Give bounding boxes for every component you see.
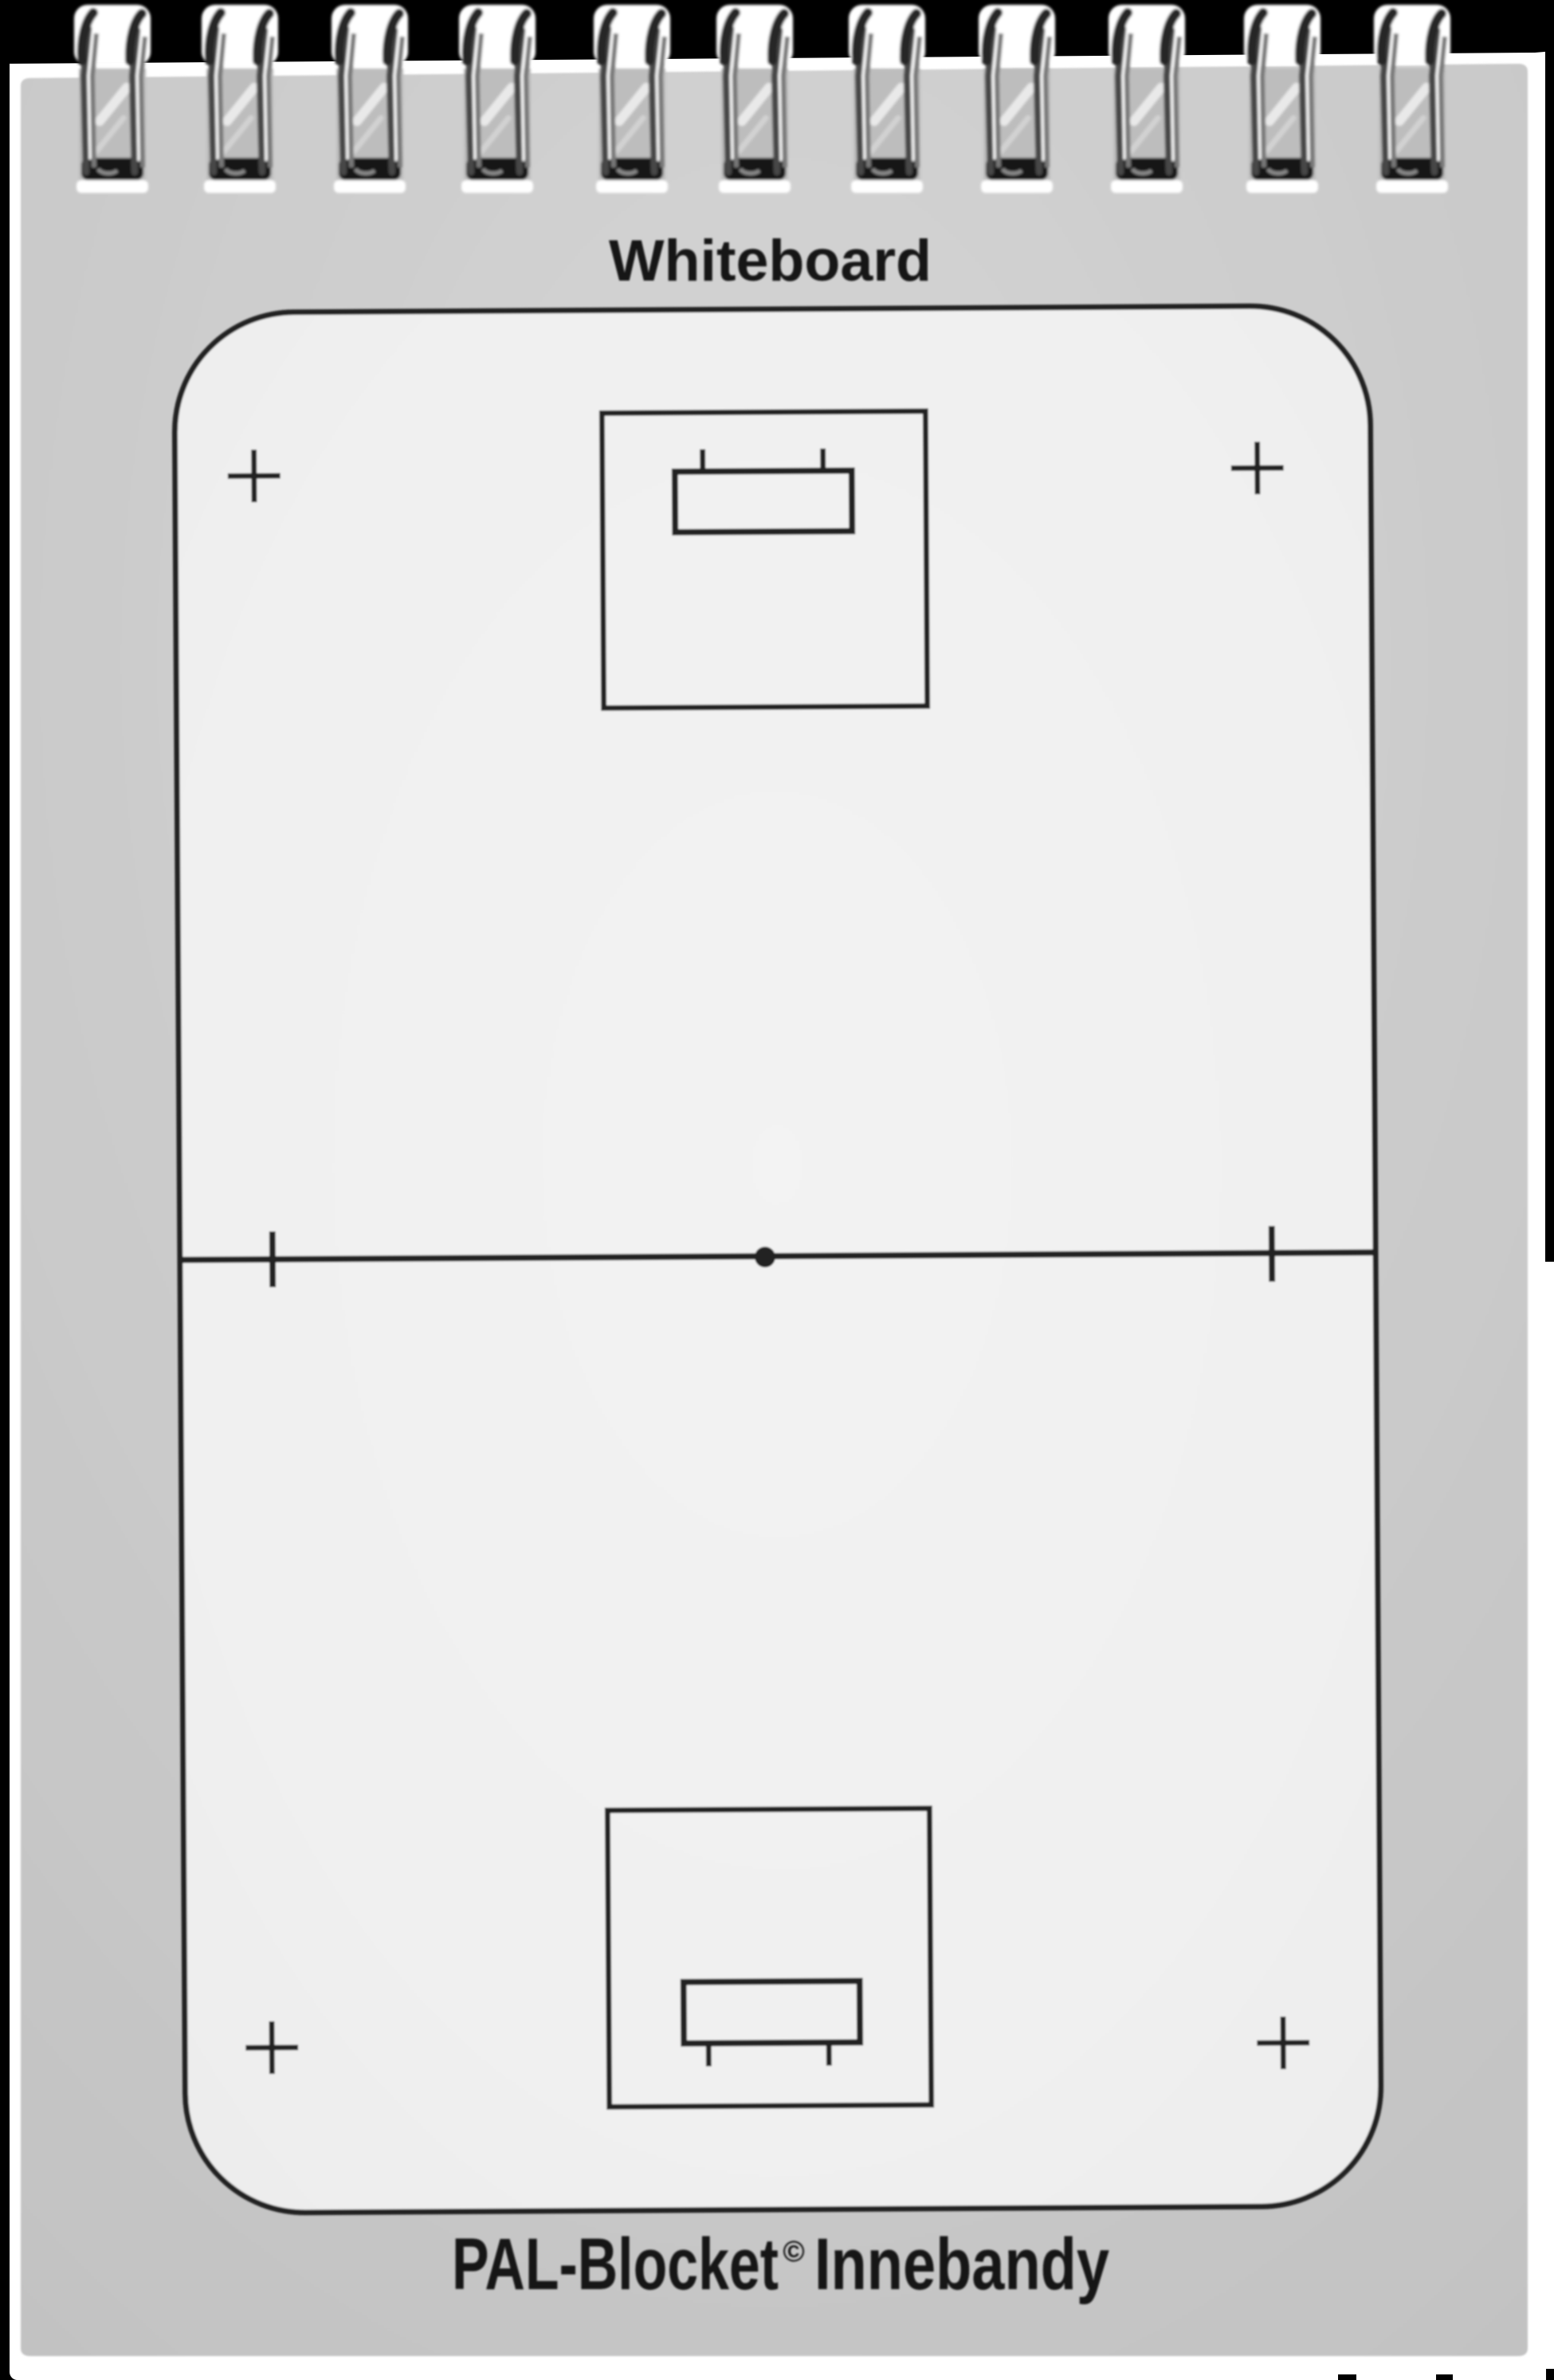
svg-text:PAL-Blocket: PAL-Blocket (452, 2224, 779, 2305)
svg-text:©: © (783, 2235, 804, 2268)
svg-text:Innebandy: Innebandy (814, 2224, 1109, 2305)
svg-text:Whiteboard: Whiteboard (609, 229, 932, 293)
